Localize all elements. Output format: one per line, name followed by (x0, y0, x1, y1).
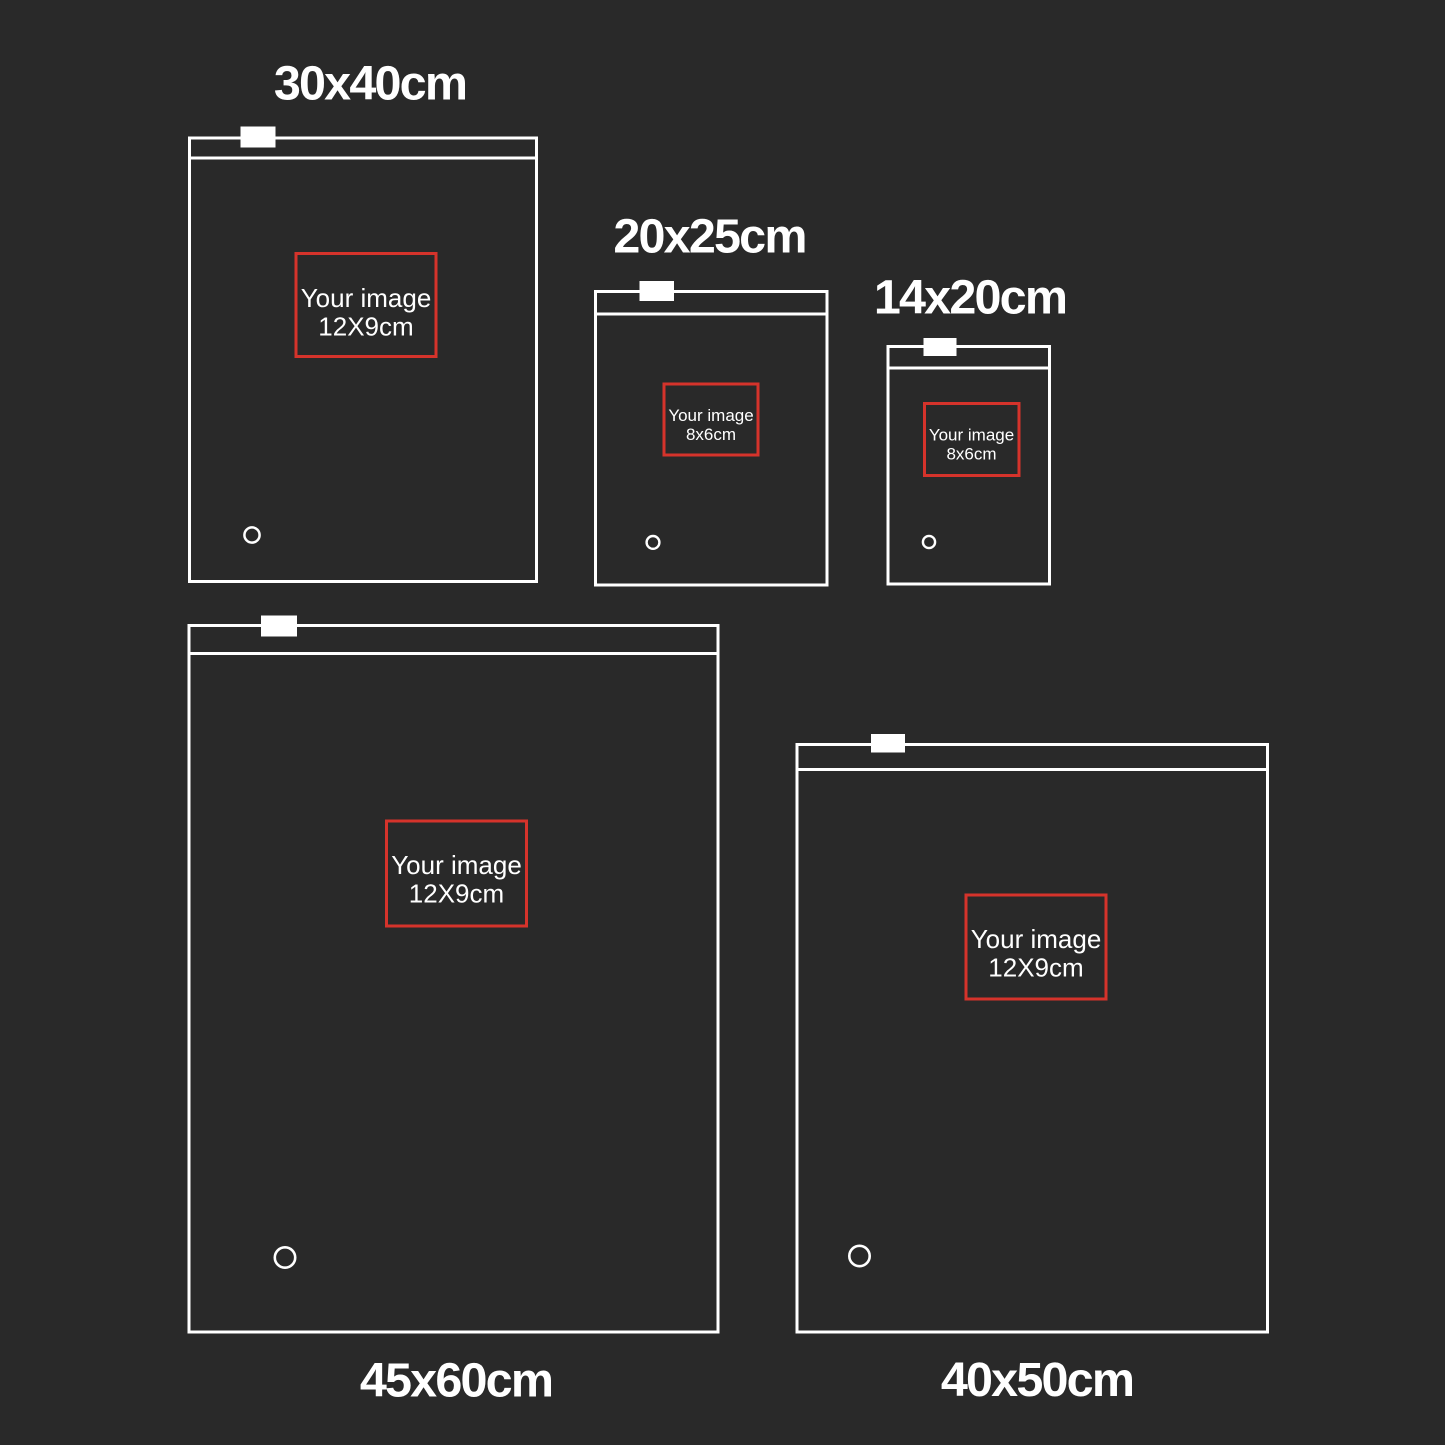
svg-text:45x60cm: 45x60cm (360, 1354, 552, 1408)
svg-text:12X9cm: 12X9cm (318, 312, 413, 342)
svg-text:14x20cm: 14x20cm (874, 271, 1066, 325)
svg-text:30x40cm: 30x40cm (274, 57, 466, 111)
svg-text:8x6cm: 8x6cm (946, 445, 996, 464)
svg-text:Your image: Your image (301, 283, 432, 313)
svg-text:Your image: Your image (971, 924, 1102, 954)
svg-text:12X9cm: 12X9cm (409, 879, 504, 909)
svg-text:40x50cm: 40x50cm (941, 1353, 1133, 1407)
svg-text:12X9cm: 12X9cm (988, 953, 1083, 983)
svg-text:8x6cm: 8x6cm (686, 425, 736, 444)
svg-text:20x25cm: 20x25cm (613, 210, 805, 264)
svg-text:Your image: Your image (668, 406, 753, 425)
svg-text:Your image: Your image (391, 850, 522, 880)
svg-text:Your image: Your image (929, 426, 1014, 445)
